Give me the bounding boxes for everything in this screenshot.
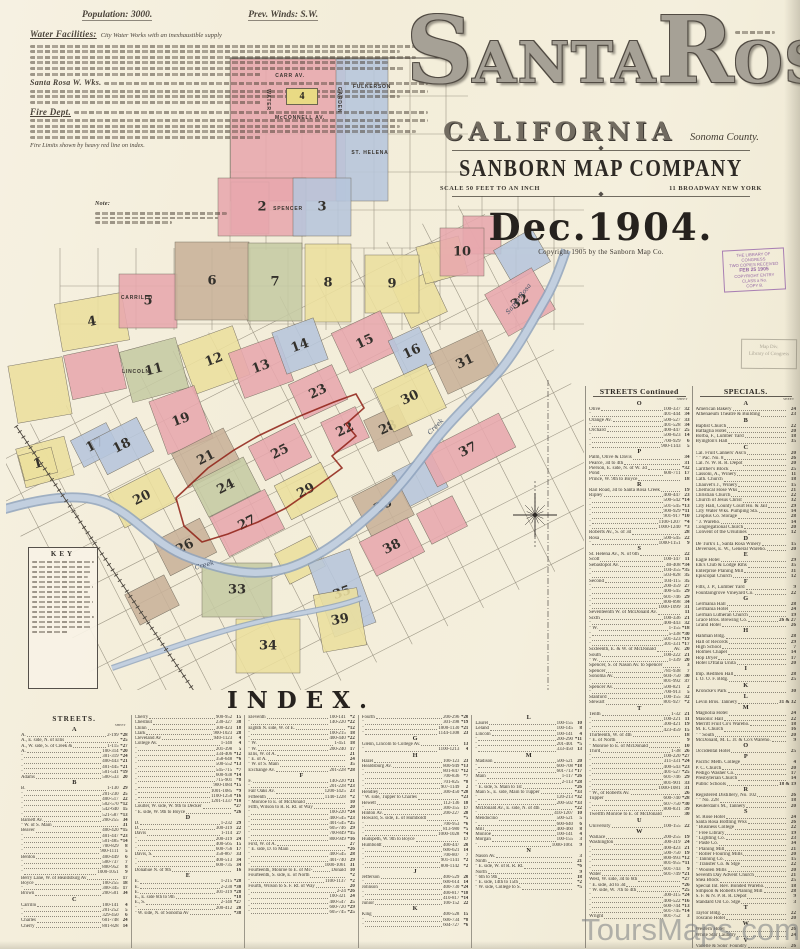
map-block: [416, 496, 467, 544]
map-date: Dec.1904.: [406, 208, 796, 246]
index-column-3: Eleventh100-141*2"140-220*22Eighth N. si…: [245, 715, 359, 948]
map-block-5: 5: [119, 274, 177, 328]
water-facilities-title: Water Facilities:: [30, 29, 97, 39]
index-entry: " W. side, N. of Sonoma Av*38: [135, 911, 242, 916]
map-block-7: 7: [248, 243, 302, 321]
fire-limits-note: Fire Limits shown by heavy red line on i…: [30, 142, 428, 149]
page-edge-shadow: [0, 941, 800, 949]
svg-text:9: 9: [387, 277, 396, 292]
illegible-key-lines: [32, 561, 94, 633]
street-label: LINCOLN: [122, 369, 150, 375]
index-column-4: Fourth200-296*20"301-398*19"1000-1130*21…: [359, 715, 473, 948]
street-label: CARRILLO: [121, 295, 153, 301]
svg-text:39: 39: [330, 611, 350, 629]
ornament-rule: [452, 196, 750, 202]
svg-text:3: 3: [317, 200, 326, 215]
map-block: [63, 344, 126, 399]
water-facilities-intro: City Water Works with an inexhaustible s…: [101, 32, 222, 39]
fire-dept-title: Fire Dept.: [30, 107, 71, 117]
company-name: SANBORN MAP COMPANY: [406, 156, 796, 184]
illegible-script-lines: [30, 119, 428, 139]
svg-text:8: 8: [323, 276, 332, 291]
surveyor-notes: Population: 3000. Prev. Winds: S.W. Wate…: [30, 10, 428, 149]
index-column-1: STREETS.SHEETAA.2-199*28A., E. side, N. …: [18, 715, 132, 948]
map-title: SANTAROSA: [406, 4, 796, 123]
svg-text:34: 34: [259, 639, 277, 654]
prevailing-winds-note: Prev. Winds: S.W.: [248, 10, 318, 21]
index-entry: "605-745*25: [248, 910, 355, 915]
page-edge-shadow: [784, 0, 800, 949]
svg-text:7: 7: [270, 275, 279, 290]
streets-continued-column: STREETS Continued SHEET OOlive100-33732"…: [585, 386, 692, 948]
handwritten-margin-note: [735, 28, 775, 36]
illegible-script-lines: [30, 45, 428, 76]
map-note: Note:: [95, 192, 227, 226]
right-index-panel: STREETS Continued SHEET OOlive100-33732"…: [585, 386, 798, 948]
address-label: 11 BROADWAY NEW YORK: [669, 185, 762, 192]
map-block-9: 9: [365, 255, 419, 313]
index-heading: INDEX.: [18, 689, 585, 712]
illegible-script-lines: [95, 212, 227, 224]
state-label: CALIFORNIA: [443, 117, 676, 146]
map-block: [8, 357, 72, 424]
specials-column: SPECIALS. SHEET AAmerican Bakery24Athena…: [692, 386, 799, 948]
key-title: KEY: [32, 550, 94, 558]
map-key-legend: KEY: [28, 547, 98, 689]
svg-text:6: 6: [207, 274, 216, 289]
map-block-4: 4: [54, 292, 129, 351]
index-column-2: Cherry900-95215Chestnut230-32738Chinn300…: [132, 715, 246, 948]
street-index: INDEX. STREETS.SHEETAA.2-199*28A., E. si…: [18, 689, 585, 948]
map-block-6: 6: [175, 242, 249, 320]
street-label: ST. HELENA: [351, 150, 388, 156]
map-block-8: 8: [305, 244, 351, 322]
population-note: Population: 3000.: [82, 10, 152, 21]
svg-text:2: 2: [257, 200, 266, 215]
compass-rose: [513, 481, 557, 549]
illegible-script-lines: [30, 90, 428, 104]
map-block-23: 23: [288, 365, 348, 420]
library-of-congress-stamp: THE LIBRARY OFCONGRESSTWO COPIES RECEIVE…: [722, 247, 786, 293]
streets-title: STREETS.: [21, 715, 128, 723]
water-works-lead: Santa Rosa W. Wks.: [30, 78, 101, 87]
street-label: SPENCER: [273, 206, 303, 212]
index-column-5: LLaurel100-15510Leland100-1458Lincoln100…: [472, 715, 585, 948]
title-block: SANTAROSA CALIFORNIA Sonoma County. SANB…: [406, 4, 796, 256]
illegible-script-lines: [104, 79, 428, 87]
map-block-20: 20: [108, 468, 177, 528]
index-entry: "604-727*6: [362, 923, 469, 928]
county-label: Sonoma County.: [690, 132, 759, 143]
map-block-22: 22: [321, 407, 370, 454]
illegible-script-lines: [74, 108, 428, 116]
svg-text:33: 33: [228, 583, 246, 598]
streets-continued-title: STREETS Continued: [593, 387, 686, 397]
scale-label: SCALE 50 FEET TO AN INCH: [440, 185, 540, 192]
hose-house-marker: 4: [286, 88, 318, 105]
index-entry: " W. side, College to S.*5: [475, 885, 582, 890]
specials-title: SPECIALS.: [700, 387, 793, 397]
index-entry: Cherry801-82814: [21, 924, 128, 929]
